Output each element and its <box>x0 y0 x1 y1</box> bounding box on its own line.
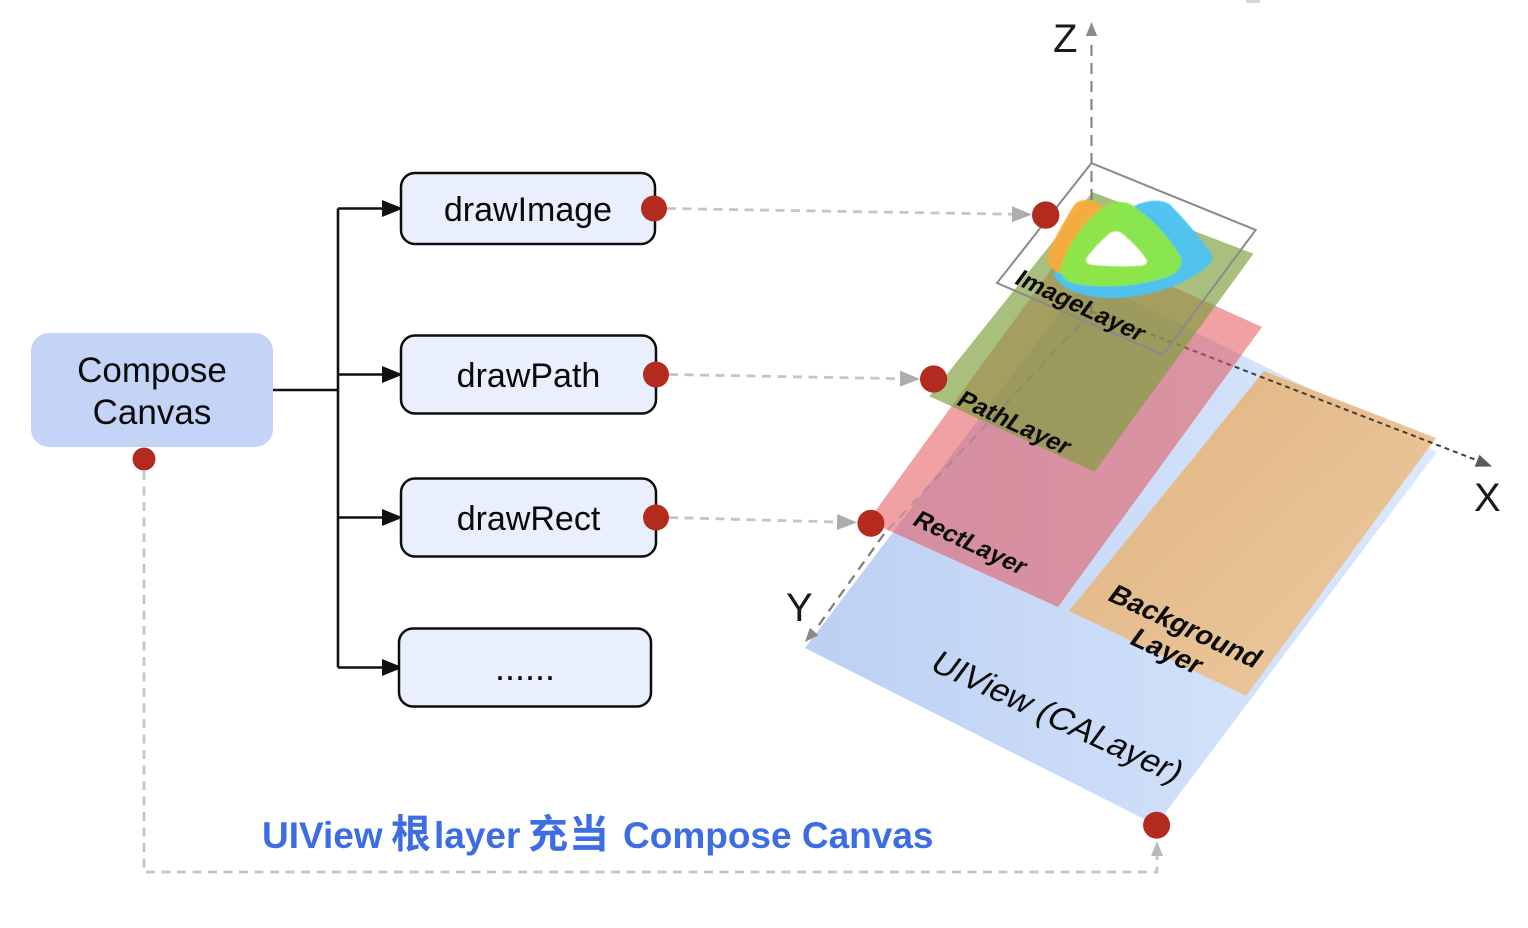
svg-text:Canvas: Canvas <box>93 393 212 432</box>
svg-text:Y: Y <box>786 586 813 630</box>
svg-text:......: ...... <box>495 647 555 688</box>
svg-text:UIView: UIView <box>262 815 383 856</box>
svg-text:layer: layer <box>434 815 520 856</box>
svg-text:drawPath: drawPath <box>457 357 601 395</box>
svg-text:Compose Canvas: Compose Canvas <box>623 815 934 856</box>
svg-text:drawRect: drawRect <box>457 500 601 538</box>
svg-text:Z: Z <box>1053 17 1077 61</box>
svg-text:Compose: Compose <box>77 351 227 390</box>
svg-text:drawImage: drawImage <box>444 191 612 229</box>
svg-text:X: X <box>1474 476 1501 520</box>
